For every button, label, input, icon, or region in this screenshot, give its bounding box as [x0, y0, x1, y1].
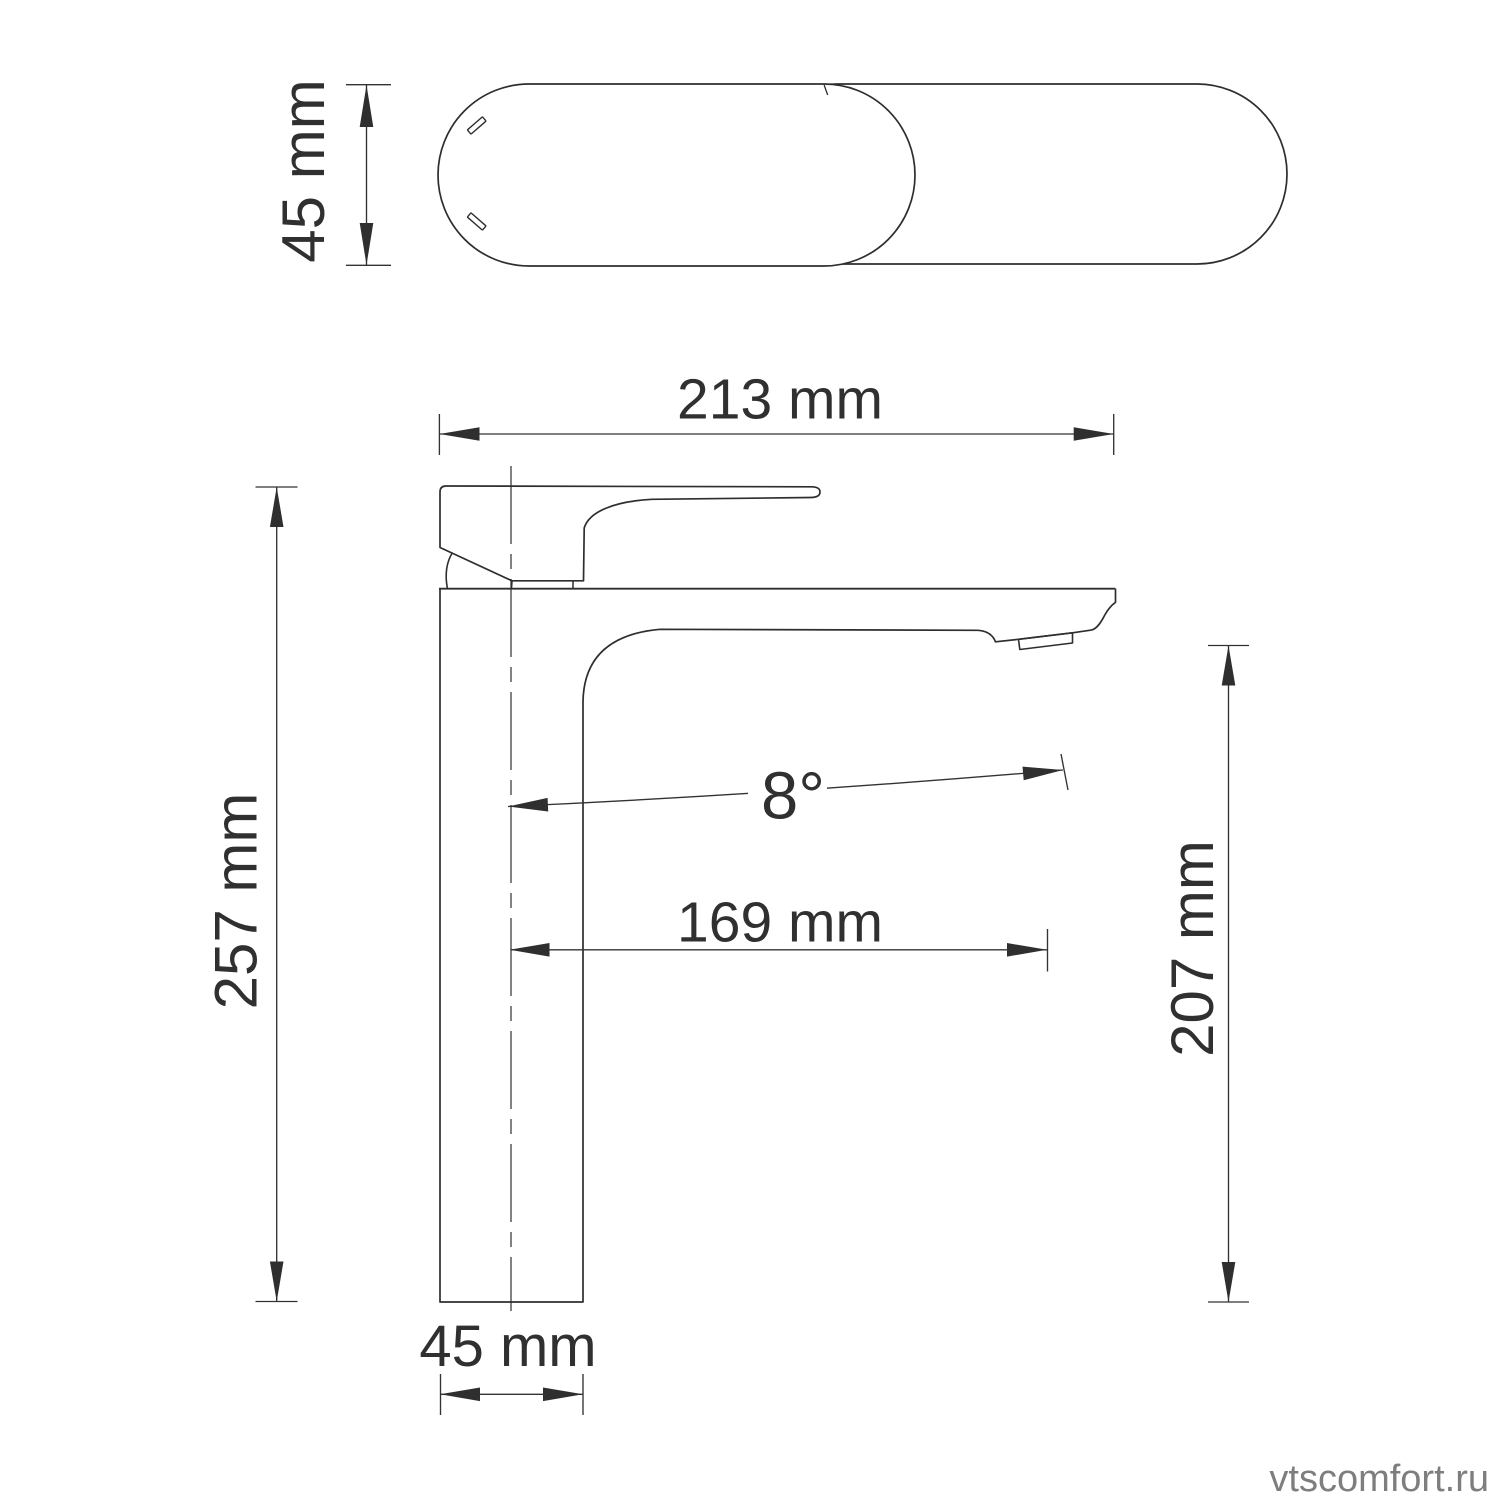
svg-text:45 mm: 45 mm: [270, 79, 337, 262]
svg-text:8°: 8°: [761, 759, 825, 834]
svg-text:213 mm: 213 mm: [677, 368, 883, 432]
svg-text:169 mm: 169 mm: [677, 891, 883, 955]
svg-text:207 mm: 207 mm: [1159, 840, 1226, 1057]
svg-text:45 mm: 45 mm: [419, 1314, 596, 1379]
svg-text:vtscomfort.ru: vtscomfort.ru: [1269, 1458, 1489, 1500]
svg-text:257 mm: 257 mm: [203, 793, 270, 1010]
